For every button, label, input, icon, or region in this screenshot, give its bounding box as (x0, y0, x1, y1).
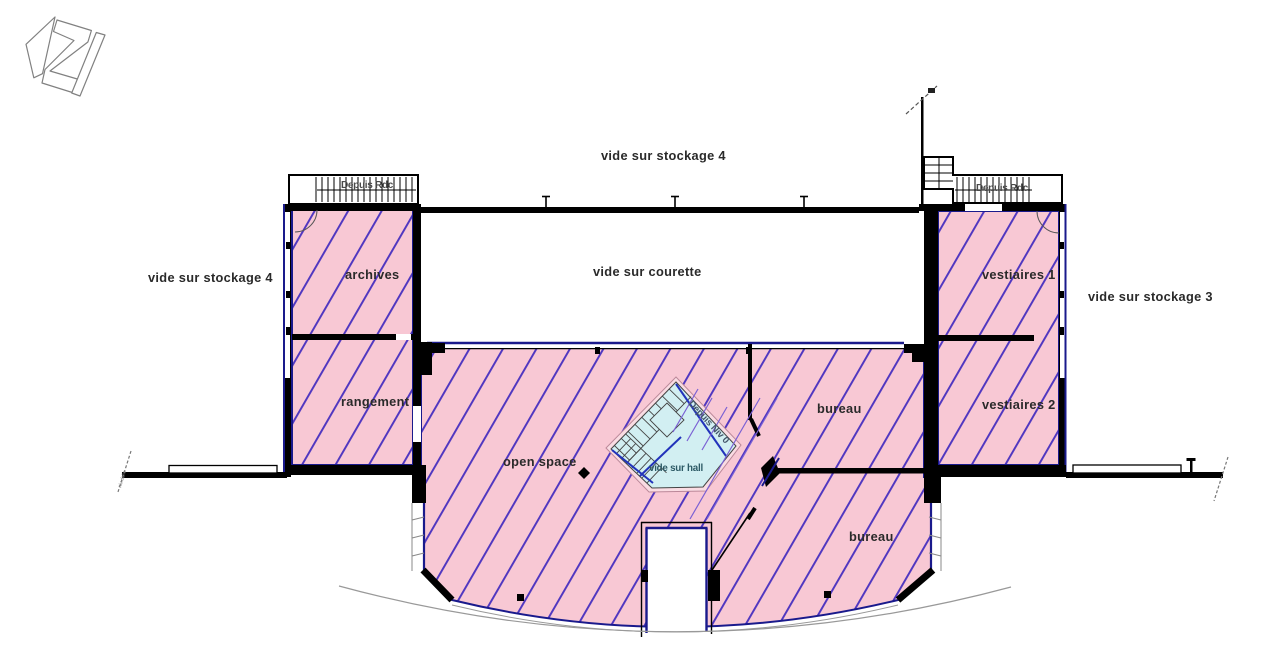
svg-text:vide sur stockage 3: vide sur stockage 3 (1088, 289, 1213, 304)
svg-text:vestiaires 2: vestiaires 2 (982, 397, 1056, 412)
svg-text:vide sur hall: vide sur hall (649, 463, 703, 474)
svg-text:rangement: rangement (341, 394, 410, 409)
svg-text:vide sur stockage 4: vide sur stockage 4 (601, 148, 726, 163)
svg-text:vide sur stockage 4: vide sur stockage 4 (148, 270, 273, 285)
svg-text:vestiaires 1: vestiaires 1 (982, 267, 1056, 282)
svg-text:vide sur courette: vide sur courette (593, 264, 702, 279)
svg-text:open space: open space (503, 454, 577, 469)
svg-text:bureau: bureau (849, 529, 894, 544)
svg-text:bureau: bureau (817, 401, 862, 416)
svg-text:archives: archives (345, 267, 400, 282)
svg-text:Depuis Rdc: Depuis Rdc (341, 180, 394, 191)
svg-text:Depuis Rdc: Depuis Rdc (976, 183, 1029, 194)
